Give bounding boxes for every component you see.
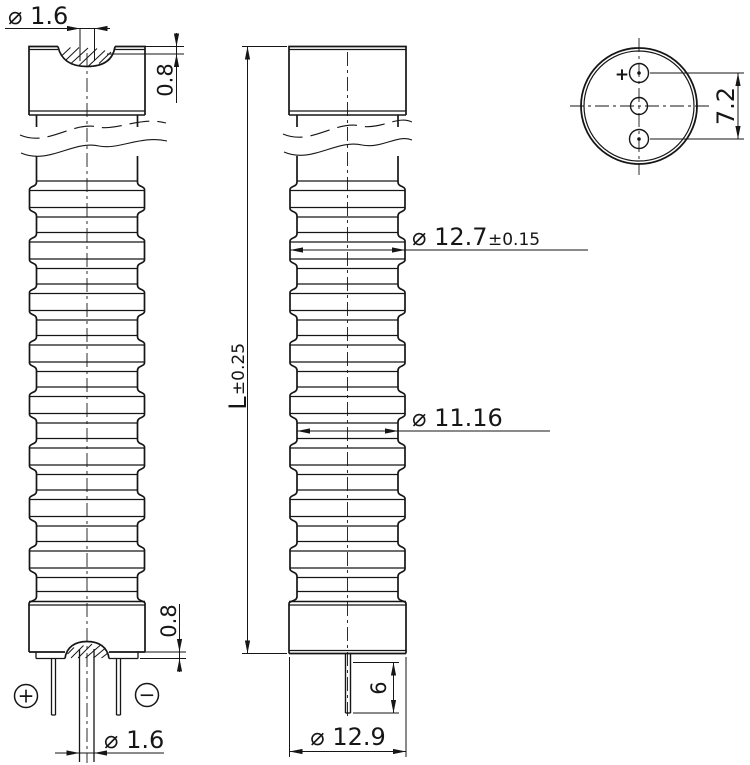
body-profile-left — [29, 156, 37, 652]
dim-arrow — [245, 641, 250, 654]
dim-label-pin-dia: ⌀ 1.6 — [104, 726, 164, 754]
dim-arrow — [67, 26, 80, 31]
break-line — [20, 121, 166, 138]
technical-drawing: ⌀ 1.60.8+−0.8⌀ 1.6L±0.25⌀ 12.7±0.15⌀ 11.… — [0, 0, 750, 765]
body-profile-right — [138, 156, 146, 652]
plus-terminal-label: + — [18, 684, 35, 708]
dim-arrow — [393, 749, 406, 754]
top-view: +7.2 — [570, 38, 744, 175]
cap-outline — [29, 47, 58, 116]
drawing-sheet: ⌀ 1.60.8+−0.8⌀ 1.6L±0.25⌀ 12.7±0.15⌀ 11.… — [0, 0, 750, 765]
hatch-line — [102, 653, 109, 659]
dim-label-body-dia-tol: ±0.15 — [488, 230, 540, 250]
dim-label-length-tol: ±0.25 — [229, 343, 249, 395]
dim-arrow — [297, 428, 310, 433]
hatch-line — [62, 48, 71, 56]
dim-label-body-dia: ⌀ 12.7 — [412, 223, 488, 251]
minus-terminal-label: − — [139, 683, 156, 707]
front-view — [20, 47, 167, 653]
positive-pin-dot — [637, 71, 641, 75]
dim-arrow — [177, 639, 182, 652]
dim-label-vent-depth: 0.8 — [154, 63, 178, 96]
dim-arrow — [385, 428, 398, 433]
dim-label-cap-dia: ⌀ 12.9 — [310, 723, 386, 751]
hatch-line — [71, 646, 84, 659]
dim-arrow — [735, 73, 740, 86]
body-profile-left — [289, 156, 297, 654]
dim-arrow — [95, 26, 108, 31]
break-line — [284, 139, 412, 156]
dim-arrow — [392, 247, 405, 252]
dim-label-waist-dia: ⌀ 11.16 — [412, 404, 503, 432]
dim-label-hole-pitch: 7.2 — [712, 87, 740, 125]
dim-arrow — [245, 47, 250, 60]
dim-label-length: L — [224, 396, 252, 410]
dim-arrow — [290, 749, 303, 754]
dim-arrow — [174, 34, 179, 47]
body-profile-right — [398, 156, 406, 654]
dim-arrow — [177, 659, 182, 672]
dim-arrow — [391, 663, 396, 676]
dim-label-rim-height: 0.8 — [157, 604, 181, 637]
side-view-annotations: L±0.25⌀ 12.7±0.15⌀ 11.166⌀ 12.9 — [224, 47, 588, 758]
dim-arrow — [67, 750, 80, 755]
negative-pin-dot — [637, 137, 641, 141]
dim-label-tab-length: 6 — [367, 681, 391, 694]
front-view-annotations: ⌀ 1.60.8+−0.8⌀ 1.6 — [5, 2, 186, 763]
cap-outline — [115, 47, 145, 116]
dim-label-vent-hole-dia: ⌀ 1.6 — [8, 2, 68, 30]
hatch-line — [86, 646, 101, 659]
dim-arrow — [290, 247, 303, 252]
dim-arrow — [391, 700, 396, 713]
polarity-plus-mark: + — [615, 65, 629, 85]
dim-arrow — [735, 126, 740, 139]
break-line — [21, 140, 167, 157]
